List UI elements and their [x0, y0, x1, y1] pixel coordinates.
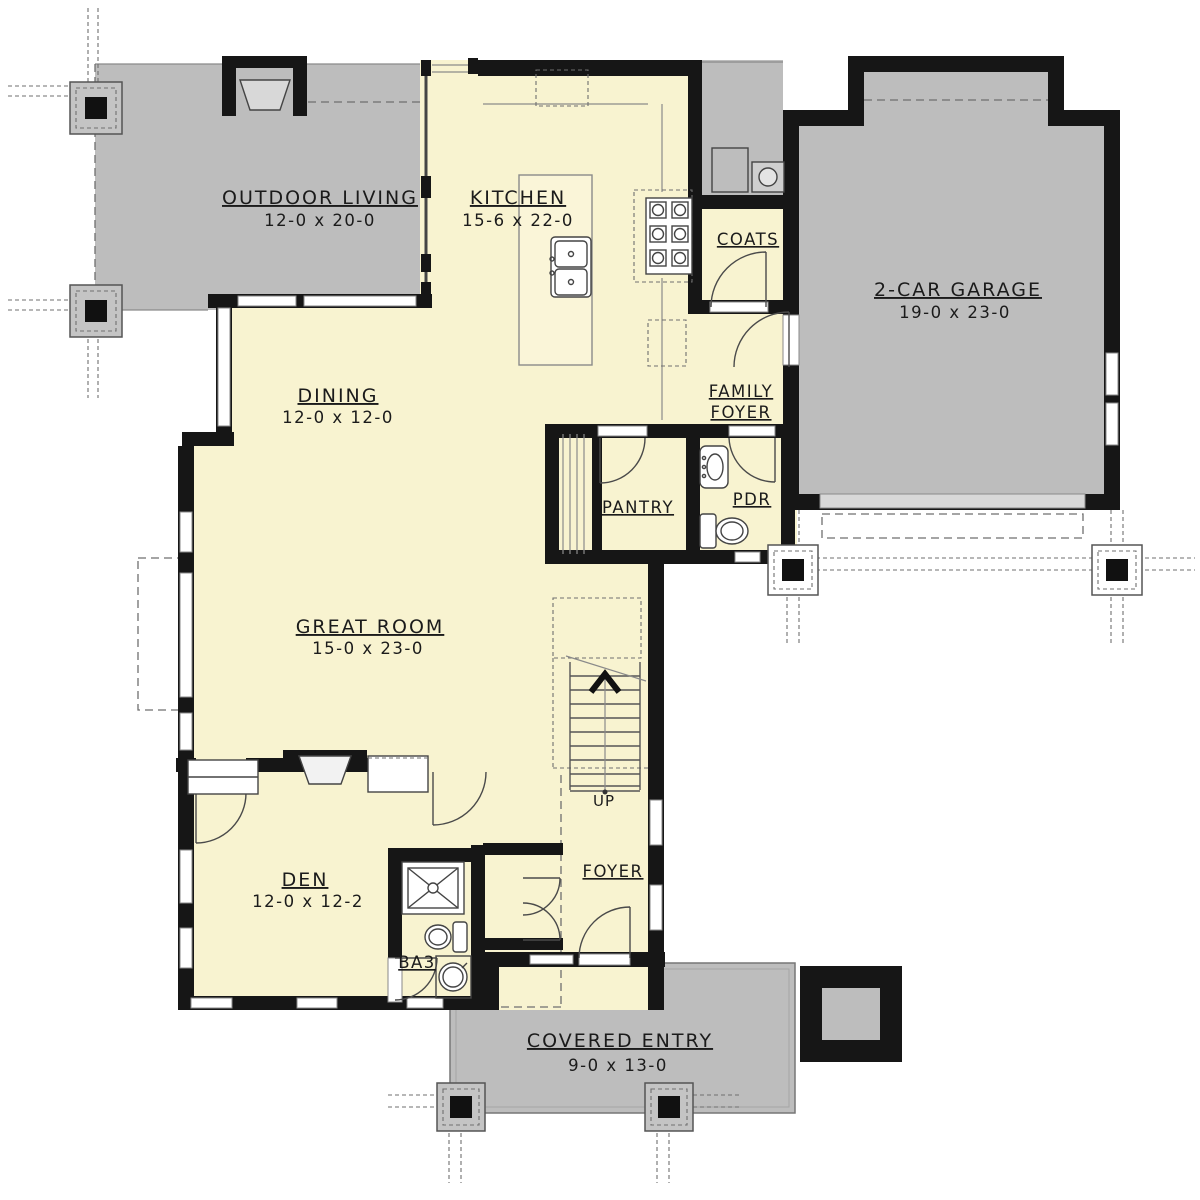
coats-door-opening: [710, 302, 768, 312]
den-builtin-cabinet: [188, 760, 258, 794]
wall-ba3-east: [471, 845, 485, 1010]
wall-garage-east: [1104, 110, 1120, 510]
wall-garage-north-left: [799, 110, 848, 126]
window: [180, 850, 192, 903]
pdr-sink: [700, 446, 728, 488]
wall-coats-north: [688, 195, 797, 209]
dims-outdoor-living: 12-0 x 20-0: [264, 211, 376, 230]
label-dining: DINING: [298, 385, 379, 407]
post: [70, 285, 122, 337]
window: [180, 512, 192, 552]
label-foyer: FOYER: [582, 862, 643, 881]
ba3-shower: [402, 862, 464, 914]
patio-fireplace-left: [222, 58, 236, 116]
patio-fireplace-right: [293, 58, 307, 116]
wall-pantry-pdr-divider: [686, 424, 700, 564]
wall-jog: [182, 432, 234, 446]
floor-plan-page: OUTDOOR LIVING 12-0 x 20-0 KITCHEN 15-6 …: [0, 0, 1200, 1200]
window: [238, 296, 296, 306]
label-family-foyer-2: FOYER: [710, 403, 771, 422]
wall-east: [648, 560, 664, 1010]
dims-garage: 19-0 x 23-0: [899, 303, 1011, 322]
wall-pantry-west: [545, 424, 559, 564]
great-room-fireplace: [299, 756, 351, 784]
media-niche: [368, 756, 428, 792]
label-garage: 2-CAR GARAGE: [874, 279, 1042, 301]
window: [530, 955, 573, 964]
post: [768, 545, 818, 595]
label-great-room: GREAT ROOM: [296, 616, 445, 638]
wall-closet-north: [483, 843, 563, 855]
dims-kitchen: 15-6 x 22-0: [462, 211, 574, 230]
window: [297, 998, 337, 1008]
wall-kitchen-north: [478, 60, 702, 76]
window: [1106, 353, 1118, 395]
post: [1092, 545, 1142, 595]
label-den: DEN: [282, 869, 329, 891]
wall-foyer-south: [483, 952, 665, 967]
water-heater: [752, 162, 784, 192]
dims-den: 12-0 x 12-2: [252, 892, 364, 911]
wall-bump-north: [848, 56, 1064, 72]
dims-great-room: 15-0 x 23-0: [312, 639, 424, 658]
window: [650, 800, 662, 845]
window: [180, 928, 192, 968]
wall-ba3-north: [388, 848, 485, 862]
window: [1106, 403, 1118, 445]
post: [645, 1083, 693, 1131]
pdr-door-opening: [729, 426, 775, 436]
garage-entry-door-opening: [783, 315, 799, 365]
post: [70, 82, 122, 134]
wall-garage-west: [783, 110, 799, 510]
garage-door-apron: [820, 494, 1085, 508]
dims-covered-entry: 9-0 x 13-0: [568, 1056, 668, 1075]
garage-door-dashed: [822, 514, 1083, 538]
post: [437, 1083, 485, 1131]
wall-foyer-step: [483, 952, 499, 1010]
window: [180, 713, 192, 750]
entry-corner-pier-core: [822, 988, 880, 1040]
kitchen-sink: [550, 237, 591, 297]
window: [407, 998, 443, 1008]
wall-bump-west: [848, 56, 864, 126]
label-stairs-up: UP: [593, 792, 615, 810]
window: [304, 296, 416, 306]
label-family-foyer-1: FAMILY: [709, 382, 773, 401]
window: [650, 885, 662, 930]
dims-dining: 12-0 x 12-0: [282, 408, 394, 427]
label-coats: COATS: [717, 230, 779, 249]
label-covered-entry: COVERED ENTRY: [527, 1030, 713, 1052]
dining-window-seat-dashed: [138, 558, 180, 710]
front-door-opening: [579, 954, 630, 965]
window: [180, 573, 192, 697]
label-ba3: BA3: [398, 953, 436, 972]
label-pdr: PDR: [733, 490, 772, 509]
wall-bump-east: [1048, 56, 1064, 126]
label-outdoor-living: OUTDOOR LIVING: [222, 187, 418, 209]
label-pantry: PANTRY: [602, 498, 674, 517]
window: [735, 552, 760, 562]
window: [191, 998, 232, 1008]
pantry-door-opening: [598, 426, 647, 436]
window: [218, 308, 230, 426]
floor-plan-drawing: OUTDOOR LIVING 12-0 x 20-0 KITCHEN 15-6 …: [0, 0, 1200, 1200]
label-kitchen: KITCHEN: [470, 187, 566, 209]
